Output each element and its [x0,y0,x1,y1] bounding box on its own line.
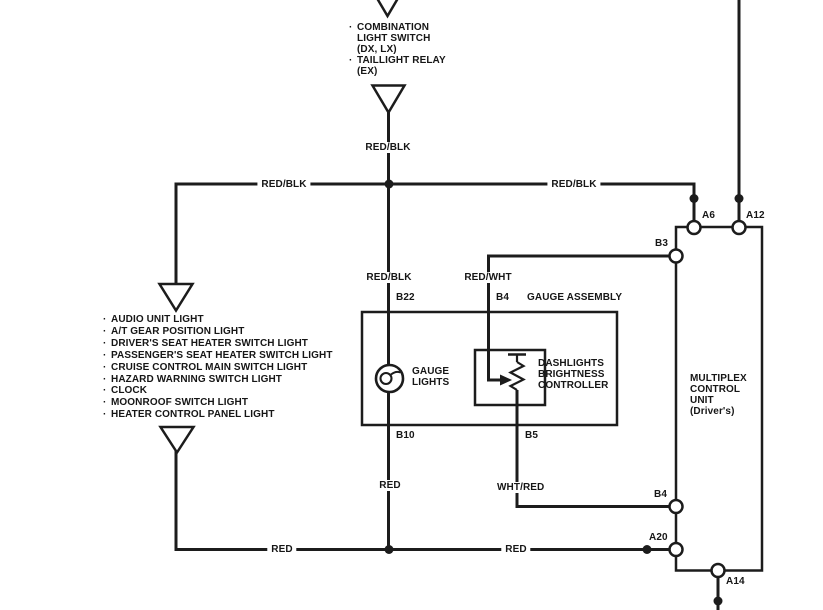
list-text: CRUISE CONTROL MAIN SWITCH LIGHT [111,362,307,374]
list-text: (EX) [357,67,377,78]
list-line: DASHLIGHTS [538,358,608,369]
bullet-marker [349,34,357,45]
schematic-linework [0,0,823,610]
list-text: CLOCK [111,385,147,397]
left-component-list: ·AUDIO UNIT LIGHT·A/T GEAR POSITION LIGH… [103,314,333,421]
list-line: ·DRIVER'S SEAT HEATER SWITCH LIGHT [103,338,333,350]
list-line: ·CRUISE CONTROL MAIN SWITCH LIGHT [103,362,333,374]
pin-b4 [670,500,683,513]
pin-a12 [733,221,746,234]
wire-label-red-blk-top: RED/BLK [361,142,414,153]
wire-label-red-gauge: RED [375,480,404,491]
connector-triangle-left-upper-icon [160,284,193,311]
list-line: ·TAILLIGHT RELAY [349,56,446,67]
terminal-label-b4-gauge: B4 [496,292,509,303]
list-line: (Driver's) [690,406,747,417]
multiplex-control-unit-label: MULTIPLEXCONTROLUNIT(Driver's) [690,373,747,417]
wire-red-bottom [176,451,671,550]
wiper-arrow-icon [500,375,512,386]
terminal-label-a14: A14 [726,576,745,587]
list-text: PASSENGER'S SEAT HEATER SWITCH LIGHT [111,350,333,362]
wire-label-red-bottom-right: RED [501,544,530,555]
bullet-marker: · [103,326,111,338]
terminal-label-a12: A12 [746,210,765,221]
list-line: CONTROLLER [538,380,608,391]
list-line: GAUGE [412,366,449,377]
wire-label-red-blk-right: RED/BLK [547,179,600,190]
wire-label-red-blk-left: RED/BLK [257,179,310,190]
list-line: ·AUDIO UNIT LIGHT [103,314,333,326]
wire-label-red-blk-gauge: RED/BLK [362,272,415,283]
bullet-marker: · [103,350,111,362]
terminal-label-b5: B5 [525,430,538,441]
list-text: MOONROOF SWITCH LIGHT [111,397,248,409]
bullet-marker: · [103,314,111,326]
list-line: UNIT [690,395,747,406]
dashlights-brightness-controller-label: DASHLIGHTSBRIGHTNESSCONTROLLER [538,358,608,391]
terminal-label-a6: A6 [702,210,715,221]
list-text: AUDIO UNIT LIGHT [111,314,204,326]
bullet-marker: · [103,409,111,421]
terminal-label-b22: B22 [396,292,415,303]
bullet-marker: · [103,338,111,350]
bullet-marker [349,67,357,78]
pin-a20 [670,543,683,556]
wire-label-wht-red: WHT/RED [493,482,548,493]
list-text: TAILLIGHT RELAY [357,56,446,67]
list-line: ·HEATER CONTROL PANEL LIGHT [103,409,333,421]
pin-a6 [688,221,701,234]
terminal-label-b10: B10 [396,430,415,441]
terminal-label-b4-mux: B4 [654,489,667,500]
gauge-lights-label: GAUGELIGHTS [412,366,449,388]
bullet-marker: · [349,56,357,67]
list-text: A/T GEAR POSITION LIGHT [111,326,244,338]
connector-triangle-feed-icon [373,86,405,113]
wiring-diagram-canvas: ·COMBINATIONLIGHT SWITCH(DX, LX)·TAILLIG… [0,0,823,610]
list-line: (EX) [349,67,446,78]
top-component-list: ·COMBINATIONLIGHT SWITCH(DX, LX)·TAILLIG… [349,23,446,78]
list-line: ·MOONROOF SWITCH LIGHT [103,397,333,409]
bullet-marker: · [103,397,111,409]
terminal-label-b3: B3 [655,238,668,249]
bullet-marker: · [103,385,111,397]
wires [176,0,739,610]
list-line: MULTIPLEX [690,373,747,384]
connector-triangle-left-lower-icon [161,427,194,453]
bullet-marker: · [103,374,111,386]
wire-label-red-bottom-left: RED [267,544,296,555]
list-text: HAZARD WARNING SWITCH LIGHT [111,374,282,386]
list-line: ·HAZARD WARNING SWITCH LIGHT [103,374,333,386]
list-line: BRIGHTNESS [538,369,608,380]
rheostat-symbol-icon [500,355,526,391]
list-line: CONTROL [690,384,747,395]
brightness-controller-box [475,350,545,405]
wire-red-blk-horizontal [176,184,694,283]
connector-triangle-top-icon [371,0,404,16]
bullet-marker: · [349,23,357,34]
list-line: ·A/T GEAR POSITION LIGHT [103,326,333,338]
list-line: LIGHTS [412,377,449,388]
list-text: DRIVER'S SEAT HEATER SWITCH LIGHT [111,338,308,350]
pin-b3 [670,250,683,263]
gauge-assembly-title: GAUGE ASSEMBLY [527,292,622,303]
wire-label-red-wht: RED/WHT [460,272,515,283]
list-text: HEATER CONTROL PANEL LIGHT [111,409,275,421]
bullet-marker: · [103,362,111,374]
pin-a14 [712,564,725,577]
terminal-label-a20: A20 [649,532,668,543]
list-line: ·PASSENGER'S SEAT HEATER SWITCH LIGHT [103,350,333,362]
bulb-symbol-icon [376,365,403,392]
list-line: ·CLOCK [103,385,333,397]
